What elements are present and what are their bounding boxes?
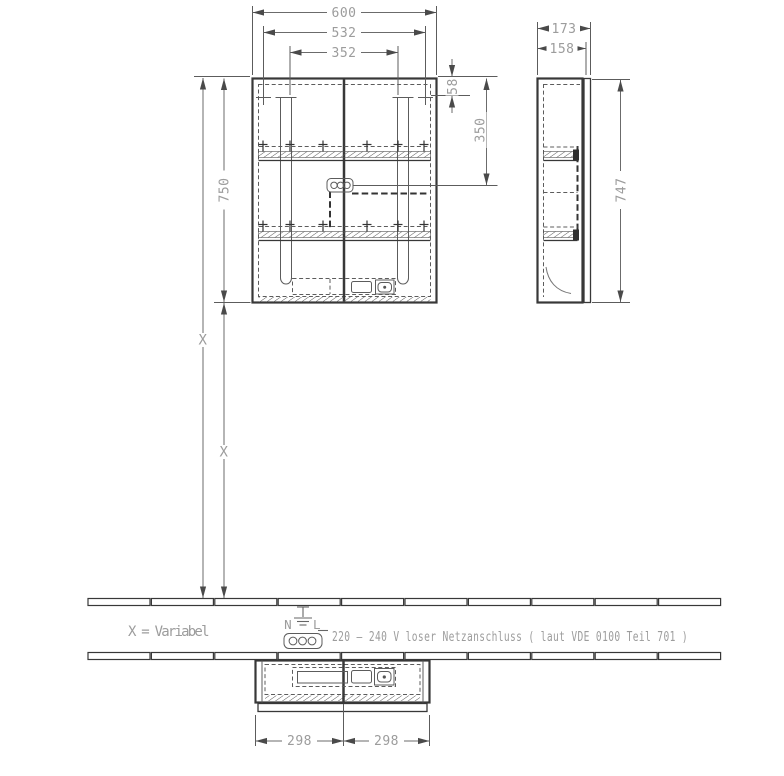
terminal-block-symbol <box>284 634 322 649</box>
note-power: 220 – 240 V loser Netzanschluss ( laut V… <box>332 630 688 645</box>
terminal-block-front <box>327 179 353 193</box>
ground-symbol <box>294 607 328 631</box>
front-view <box>253 79 498 303</box>
dim-side-depth: 173 <box>552 22 577 37</box>
front-right-light-strip <box>398 97 409 284</box>
dim-front-height: 750 <box>218 178 233 203</box>
terminal-l-label: L <box>313 617 321 632</box>
dim-var-lower: X <box>220 445 229 461</box>
front-left-light-strip <box>281 97 292 284</box>
door-swing-arc <box>546 267 571 294</box>
bottom-light-lip <box>258 704 427 712</box>
bottom-dimensions: 298 298 <box>256 704 430 749</box>
dim-front-width: 600 <box>332 6 357 21</box>
side-mirror-door <box>584 79 591 303</box>
dim-socket-drop: 350 <box>474 118 489 143</box>
wall-line-upper <box>88 599 721 606</box>
side-shelf-upper <box>544 147 580 161</box>
front-right-dimensions: 58 350 <box>431 59 489 185</box>
dim-bottom-left: 298 <box>287 734 312 749</box>
side-cabinet-body <box>538 79 583 303</box>
terminal-n-label: N <box>284 617 292 632</box>
dim-top-offset: 58 <box>446 78 461 95</box>
mirror-cabinet-drawing: 600 532 352 X 750 X 58 350 <box>0 0 784 776</box>
note-row: X = Variabel N L 220 – 240 V loser Netza… <box>128 607 688 649</box>
dim-front-width-inner: 532 <box>332 26 357 41</box>
side-view <box>538 79 591 303</box>
left-dimensions: X 750 X <box>196 78 251 598</box>
bottom-view <box>256 661 430 712</box>
socket-front <box>376 280 395 294</box>
dim-side-height: 747 <box>615 178 630 203</box>
note-variable: X = Variabel <box>128 624 210 640</box>
technical-drawing-page: 600 532 352 X 750 X 58 350 <box>0 0 784 776</box>
wall-line-lower <box>88 653 721 660</box>
dim-side-depth-body: 158 <box>550 42 575 57</box>
dim-bottom-right: 298 <box>374 734 399 749</box>
side-shelf-lower <box>544 227 580 241</box>
socket-bottom <box>375 669 395 686</box>
dim-front-width-lamps: 352 <box>332 46 357 61</box>
dim-var-upper: X <box>199 333 208 349</box>
